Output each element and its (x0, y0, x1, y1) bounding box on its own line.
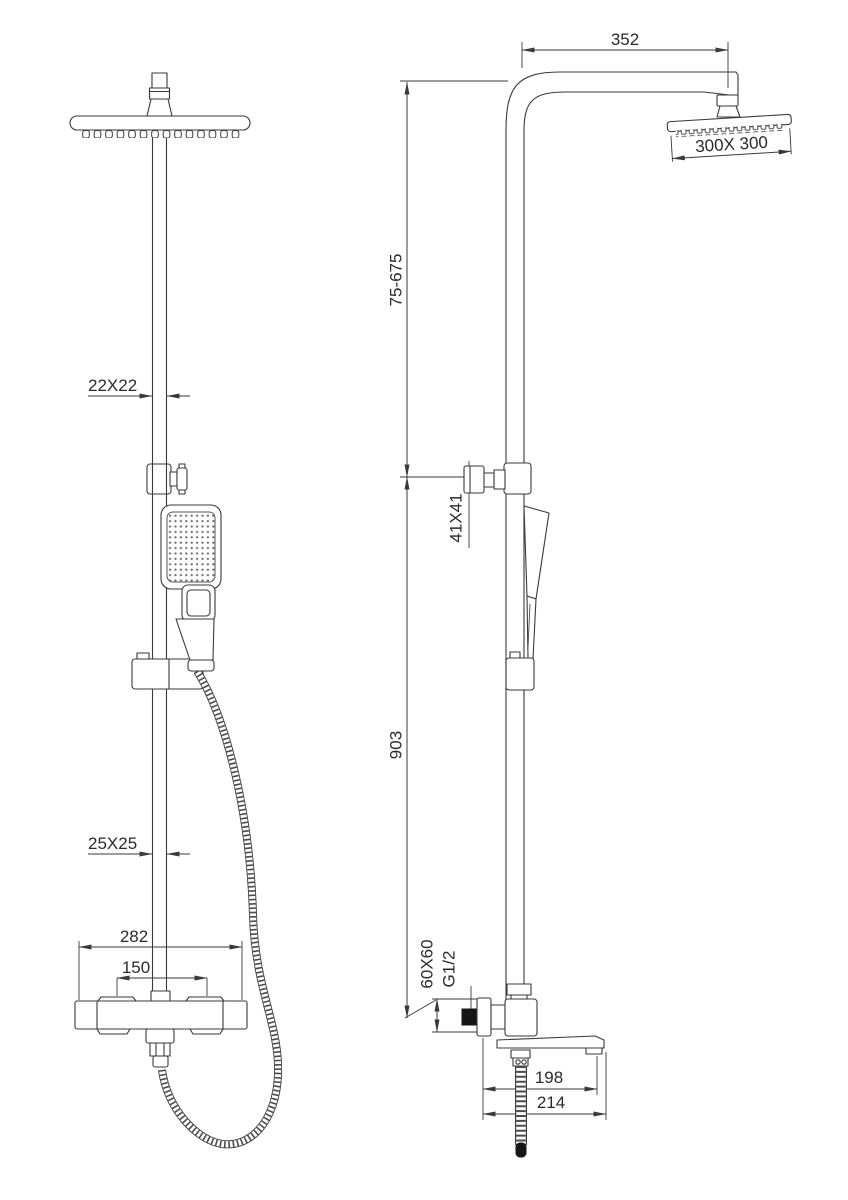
head-ball-joint-side (717, 95, 740, 117)
mixer-body-front (75, 1001, 247, 1029)
slide-bracket-side (464, 463, 531, 494)
escutcheon-side (477, 998, 491, 1036)
hand-shower-holder-side (506, 652, 534, 690)
dim-label-pipe-upper: 22X22 (88, 376, 137, 395)
spout-side (497, 1036, 604, 1048)
dim-label-pipe-lower: 25X25 (88, 834, 137, 853)
valve-body-side (505, 999, 537, 1036)
hand-shower-spray-face (167, 512, 215, 582)
mixer-front (75, 991, 247, 1034)
side-view-dimensions: 352 75-675 903 41X41 60X60 G1/2 198 214 (387, 30, 729, 1120)
dim-label-slider-bracket: 41X41 (447, 493, 466, 542)
spout-aerator (586, 1048, 602, 1054)
dim-label-thread: G1/2 (440, 951, 459, 988)
head-connector-front (147, 73, 172, 116)
drawing-canvas: 22X22 25X25 282 150 (0, 0, 848, 1200)
rain-shower-head-front (70, 116, 250, 138)
inlet-flange-right (186, 997, 224, 1001)
riser-collar-front (151, 991, 170, 1002)
riser-nut-side (507, 984, 531, 995)
rain-shower-head-side: 300X 300 (667, 114, 793, 161)
dim-label-arm-reach: 352 (611, 30, 639, 49)
hose-end-cap (516, 1143, 526, 1157)
hand-shower-side (524, 506, 549, 659)
side-view: 300X 300 (462, 72, 793, 1157)
dim-label-mixer-width: 282 (120, 927, 148, 946)
dim-label-inlet-spacing: 150 (122, 958, 150, 977)
dim-label-upper-riser: 75-675 (387, 254, 406, 307)
dim-label-spout-outlet: 198 (535, 1068, 563, 1087)
dim-label-escutcheon: 60X60 (418, 939, 437, 988)
hand-shower-front (161, 505, 221, 671)
dim-label-head-size: 300X 300 (695, 133, 769, 156)
rain-head-nozzles-front (80, 129, 241, 139)
shower-hose-front (162, 671, 278, 1144)
inlet-flange-left (98, 997, 136, 1001)
front-view (70, 73, 278, 1144)
dim-label-spout-tip: 214 (537, 1093, 565, 1112)
shower-hose-side (516, 1066, 526, 1157)
connector-nut-side (491, 1005, 505, 1029)
mixer-outlet-front (146, 1029, 174, 1067)
dim-label-lower-riser: 903 (387, 731, 406, 759)
